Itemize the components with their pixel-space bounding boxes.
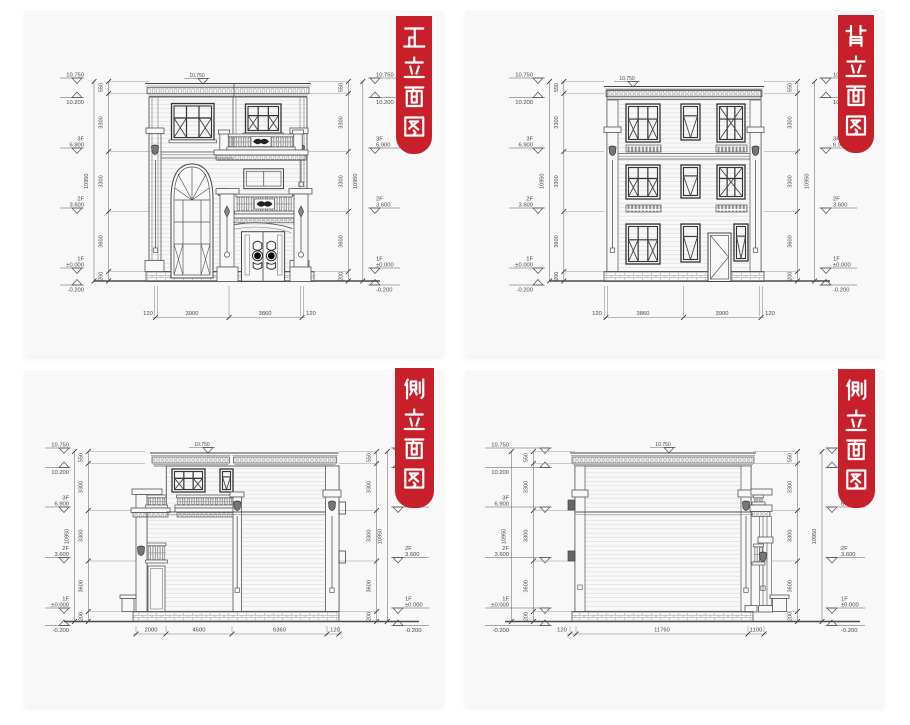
- svg-text:2F: 2F: [376, 196, 383, 202]
- svg-text:-0.200: -0.200: [517, 288, 533, 294]
- svg-text:3900: 3900: [716, 311, 729, 317]
- svg-text:3300: 3300: [78, 481, 84, 493]
- svg-text:3.600: 3.600: [405, 552, 420, 558]
- svg-text:120: 120: [330, 628, 340, 634]
- svg-text:10.750: 10.750: [619, 76, 635, 82]
- svg-text:±0.000: ±0.000: [841, 603, 859, 609]
- svg-text:6.900: 6.900: [376, 143, 391, 149]
- svg-text:10950: 10950: [65, 529, 71, 545]
- svg-text:1F: 1F: [502, 596, 509, 602]
- svg-text:±0.000: ±0.000: [405, 603, 423, 609]
- svg-text:10950: 10950: [353, 173, 359, 189]
- svg-text:3860: 3860: [259, 311, 272, 317]
- svg-text:550: 550: [78, 453, 84, 462]
- svg-text:2F: 2F: [502, 546, 509, 552]
- svg-text:3300: 3300: [554, 175, 560, 187]
- svg-text:3300: 3300: [338, 175, 344, 187]
- svg-text:1F: 1F: [405, 596, 412, 602]
- svg-text:10.200: 10.200: [515, 100, 533, 106]
- svg-text:10.750: 10.750: [655, 442, 671, 448]
- svg-text:1F: 1F: [77, 256, 84, 262]
- svg-text:11760: 11760: [654, 628, 670, 634]
- svg-text:3.600: 3.600: [841, 552, 856, 558]
- svg-text:3.600: 3.600: [494, 552, 509, 558]
- svg-text:10.200: 10.200: [491, 470, 509, 476]
- svg-text:200: 200: [99, 272, 105, 281]
- svg-text:1F: 1F: [841, 596, 848, 602]
- svg-text:2F: 2F: [405, 546, 412, 552]
- svg-text:10950: 10950: [540, 173, 546, 189]
- svg-text:10.200: 10.200: [66, 100, 84, 106]
- svg-text:-0.200: -0.200: [405, 628, 421, 634]
- svg-text:200: 200: [788, 272, 794, 281]
- svg-text:±0.000: ±0.000: [376, 263, 394, 269]
- svg-text:3300: 3300: [788, 175, 794, 187]
- svg-text:550: 550: [367, 453, 373, 462]
- svg-text:3300: 3300: [523, 481, 529, 493]
- svg-text:3F: 3F: [502, 495, 509, 501]
- svg-text:3.600: 3.600: [518, 203, 533, 209]
- svg-text:3300: 3300: [554, 116, 560, 128]
- svg-text:1F: 1F: [62, 596, 69, 602]
- svg-text:2F: 2F: [526, 196, 533, 202]
- svg-text:120: 120: [143, 311, 153, 317]
- svg-text:-0.200: -0.200: [833, 288, 849, 294]
- svg-text:3600: 3600: [788, 580, 794, 592]
- svg-text:2F: 2F: [841, 546, 848, 552]
- svg-text:3860: 3860: [637, 311, 650, 317]
- svg-text:120: 120: [592, 311, 602, 317]
- svg-text:3300: 3300: [99, 116, 105, 128]
- svg-text:3.600: 3.600: [833, 203, 848, 209]
- svg-text:3300: 3300: [338, 116, 344, 128]
- svg-text:10.750: 10.750: [66, 73, 84, 79]
- svg-text:550: 550: [788, 453, 794, 462]
- svg-text:2000: 2000: [145, 628, 158, 634]
- svg-text:10950: 10950: [501, 529, 507, 545]
- svg-text:3600: 3600: [338, 235, 344, 247]
- svg-text:±0.000: ±0.000: [515, 263, 533, 269]
- svg-text:1F: 1F: [833, 256, 840, 262]
- svg-text:3900: 3900: [186, 311, 199, 317]
- svg-text:3600: 3600: [554, 235, 560, 247]
- svg-text:1F: 1F: [376, 256, 383, 262]
- svg-text:3600: 3600: [99, 235, 105, 247]
- svg-text:2F: 2F: [62, 546, 69, 552]
- svg-text:120: 120: [306, 311, 316, 317]
- svg-text:±0.000: ±0.000: [833, 263, 851, 269]
- svg-text:200: 200: [367, 612, 373, 621]
- svg-text:550: 550: [788, 83, 794, 92]
- svg-text:10950: 10950: [812, 529, 818, 545]
- svg-text:3300: 3300: [523, 530, 529, 542]
- svg-text:-0.200: -0.200: [493, 628, 509, 634]
- svg-text:550: 550: [554, 83, 560, 92]
- svg-text:±0.000: ±0.000: [66, 263, 84, 269]
- svg-text:-0.200: -0.200: [841, 628, 857, 634]
- svg-text:10.200: 10.200: [51, 470, 69, 476]
- svg-text:3300: 3300: [367, 530, 373, 542]
- svg-text:3300: 3300: [78, 530, 84, 542]
- svg-text:200: 200: [788, 612, 794, 621]
- svg-text:550: 550: [338, 83, 344, 92]
- svg-text:10950: 10950: [84, 173, 90, 189]
- svg-text:3.600: 3.600: [54, 552, 69, 558]
- svg-text:-0.200: -0.200: [376, 288, 392, 294]
- svg-text:3300: 3300: [788, 481, 794, 493]
- svg-text:1F: 1F: [526, 256, 533, 262]
- svg-text:3F: 3F: [77, 136, 84, 142]
- svg-text:3F: 3F: [62, 495, 69, 501]
- svg-text:550: 550: [523, 453, 529, 462]
- svg-text:10.750: 10.750: [194, 442, 210, 448]
- svg-text:4500: 4500: [193, 628, 206, 634]
- svg-text:10.750: 10.750: [376, 73, 394, 79]
- svg-text:200: 200: [78, 612, 84, 621]
- svg-text:6.900: 6.900: [54, 502, 69, 508]
- svg-text:3600: 3600: [78, 580, 84, 592]
- svg-text:-0.200: -0.200: [68, 288, 84, 294]
- svg-text:3.600: 3.600: [69, 203, 84, 209]
- svg-text:3300: 3300: [99, 175, 105, 187]
- svg-text:3F: 3F: [526, 136, 533, 142]
- svg-text:200: 200: [523, 612, 529, 621]
- svg-text:2F: 2F: [77, 196, 84, 202]
- svg-text:±0.000: ±0.000: [491, 603, 509, 609]
- svg-text:2F: 2F: [833, 196, 840, 202]
- svg-text:-0.200: -0.200: [53, 628, 69, 634]
- svg-text:10950: 10950: [805, 173, 811, 189]
- svg-text:±0.000: ±0.000: [51, 603, 69, 609]
- svg-text:3.600: 3.600: [376, 203, 391, 209]
- svg-text:3600: 3600: [523, 580, 529, 592]
- svg-text:6.900: 6.900: [494, 502, 509, 508]
- svg-text:120: 120: [765, 311, 775, 317]
- svg-text:6.900: 6.900: [69, 143, 84, 149]
- svg-text:3600: 3600: [788, 235, 794, 247]
- svg-text:3600: 3600: [367, 580, 373, 592]
- svg-text:10.750: 10.750: [491, 443, 509, 449]
- svg-text:3F: 3F: [376, 136, 383, 142]
- svg-text:120: 120: [557, 628, 567, 634]
- svg-text:1100: 1100: [750, 628, 762, 634]
- svg-text:3300: 3300: [788, 116, 794, 128]
- svg-text:10.750: 10.750: [515, 73, 533, 79]
- svg-text:200: 200: [554, 272, 560, 281]
- svg-text:10.200: 10.200: [376, 100, 394, 106]
- svg-text:10950: 10950: [377, 529, 383, 545]
- svg-text:6.900: 6.900: [518, 143, 533, 149]
- svg-text:550: 550: [99, 83, 105, 92]
- svg-text:6360: 6360: [273, 628, 286, 634]
- svg-text:3300: 3300: [788, 530, 794, 542]
- svg-text:3300: 3300: [367, 481, 373, 493]
- svg-text:200: 200: [338, 272, 344, 281]
- svg-text:10.750: 10.750: [189, 73, 205, 79]
- svg-text:10.750: 10.750: [51, 443, 69, 449]
